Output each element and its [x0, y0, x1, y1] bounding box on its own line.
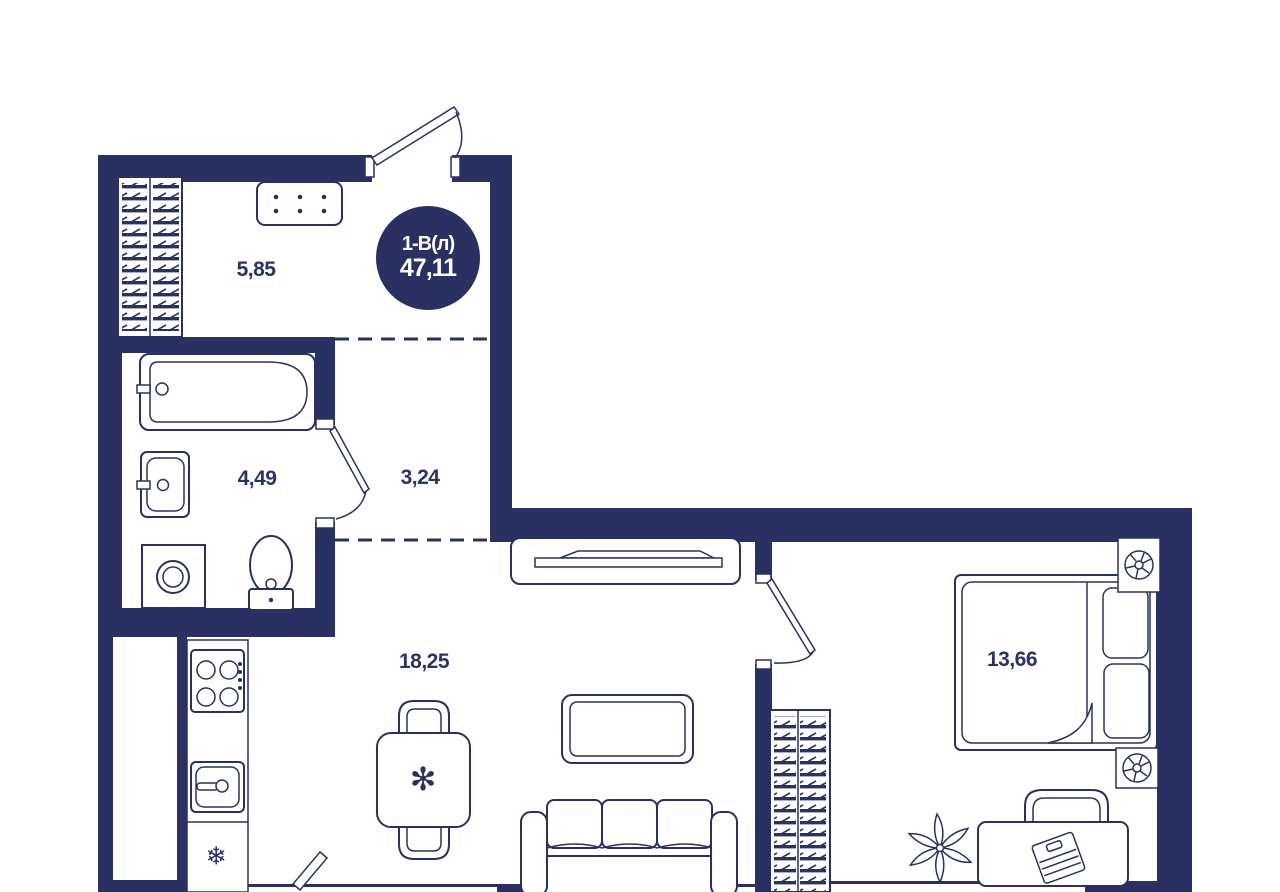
tv-stand: [511, 538, 740, 584]
room-area-bathroom: 4,49: [238, 467, 277, 491]
bathroom-sink: [137, 452, 189, 517]
bathroom-door: [316, 419, 369, 528]
floor-plan: 1-В(л) 47,11 5,85 4,49 3,24 18,25 13,66 …: [0, 0, 1280, 892]
pillow: [1104, 664, 1149, 738]
fridge-snowflake-icon: ❄: [206, 844, 227, 869]
bedroom-door: [756, 574, 815, 669]
hallway-wardrobe: [118, 177, 182, 337]
washing-machine: [142, 545, 205, 608]
toilet: [249, 536, 293, 610]
entrance-door: [365, 107, 462, 177]
room-area-living-kitchen: 18,25: [399, 650, 449, 674]
hallway-cabinet: [257, 182, 342, 225]
room-area-hallway: 5,85: [237, 258, 276, 282]
room-area-corridor: 3,24: [401, 466, 440, 490]
pillow: [1103, 588, 1148, 658]
bathtub: [137, 354, 315, 430]
bedroom-wardrobe: [770, 710, 830, 892]
bed: [955, 575, 1157, 750]
plant-icon: [908, 814, 972, 882]
vent-fan-top: [1118, 538, 1160, 592]
vent-fan-bottom: [1116, 748, 1158, 788]
zone-dashed-lines: [335, 339, 489, 540]
unit-badge: 1-В(л) 47,11: [371, 201, 485, 315]
table-flower-icon: ✻: [410, 763, 437, 795]
sofa: [521, 800, 737, 892]
coffee-table: [562, 695, 693, 763]
kitchen-sink: [191, 762, 244, 812]
room-area-bedroom: 13,66: [987, 648, 1037, 672]
unit-total-area: 47,11: [400, 255, 456, 281]
floor-plan-drawing: [0, 0, 1280, 892]
stove: [191, 650, 244, 712]
unit-label: 1-В(л): [402, 234, 454, 255]
